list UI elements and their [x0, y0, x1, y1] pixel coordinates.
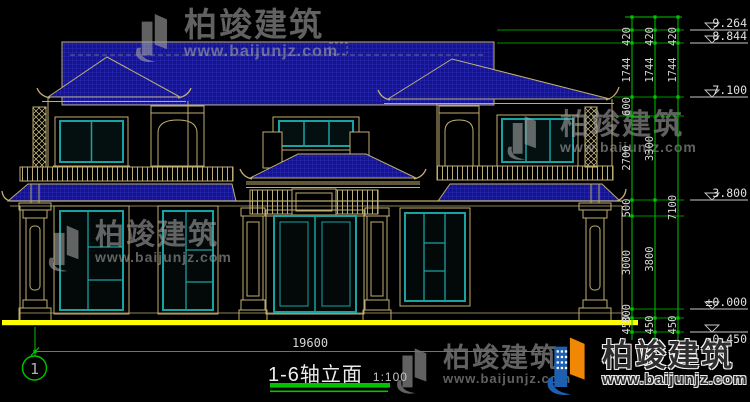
dim-label: 1744: [644, 57, 656, 82]
dim-label: 450: [667, 316, 679, 335]
elevation-label: 8.844: [712, 29, 747, 43]
dim-label: 7100: [667, 195, 679, 220]
elevation-markers: [690, 23, 748, 332]
annotation-layer: 420 1744 600 2700 500 3000 300 450 420 1…: [0, 0, 750, 402]
title-underline-thin: [270, 391, 388, 393]
total-width-dim: 19600: [292, 336, 328, 350]
dim-label: 420: [667, 27, 679, 46]
elevation-label: -0.450: [705, 332, 747, 346]
dim-label: 420: [621, 27, 633, 46]
dimension-ticks: [33, 15, 679, 353]
dim-label: 3000: [621, 250, 633, 275]
dim-label: 600: [621, 97, 633, 116]
elevation-label: 7.100: [712, 83, 747, 97]
dim-label: 3300: [644, 136, 656, 161]
title-underline-thick: [270, 383, 390, 388]
elevation-label: 9.264: [712, 16, 747, 30]
dim-label: 2700: [621, 145, 633, 170]
elevation-label: 3.800: [712, 186, 747, 200]
cad-viewport: 柏竣建筑 www.baijunjz.com 柏竣建筑 www.baijunjz.…: [0, 0, 750, 402]
dim-label: 450: [644, 316, 656, 335]
dim-label: 420: [644, 27, 656, 46]
dimension-labels: 420 1744 600 2700 500 3000 300 450 420 1…: [621, 27, 679, 334]
elevation-labels: 9.264 8.844 7.100 3.800 ±0.000 -0.450: [705, 16, 747, 346]
dim-label: 1744: [621, 57, 633, 82]
ground-line: [2, 320, 638, 325]
dim-label: 450: [621, 316, 633, 335]
dimension-lines: [23, 17, 685, 380]
dim-label: 1744: [667, 57, 679, 82]
dim-label: 500: [621, 199, 633, 218]
dim-label: 3800: [644, 246, 656, 271]
elevation-label: ±0.000: [705, 295, 747, 309]
axis-bubble-number: 1: [30, 360, 39, 378]
